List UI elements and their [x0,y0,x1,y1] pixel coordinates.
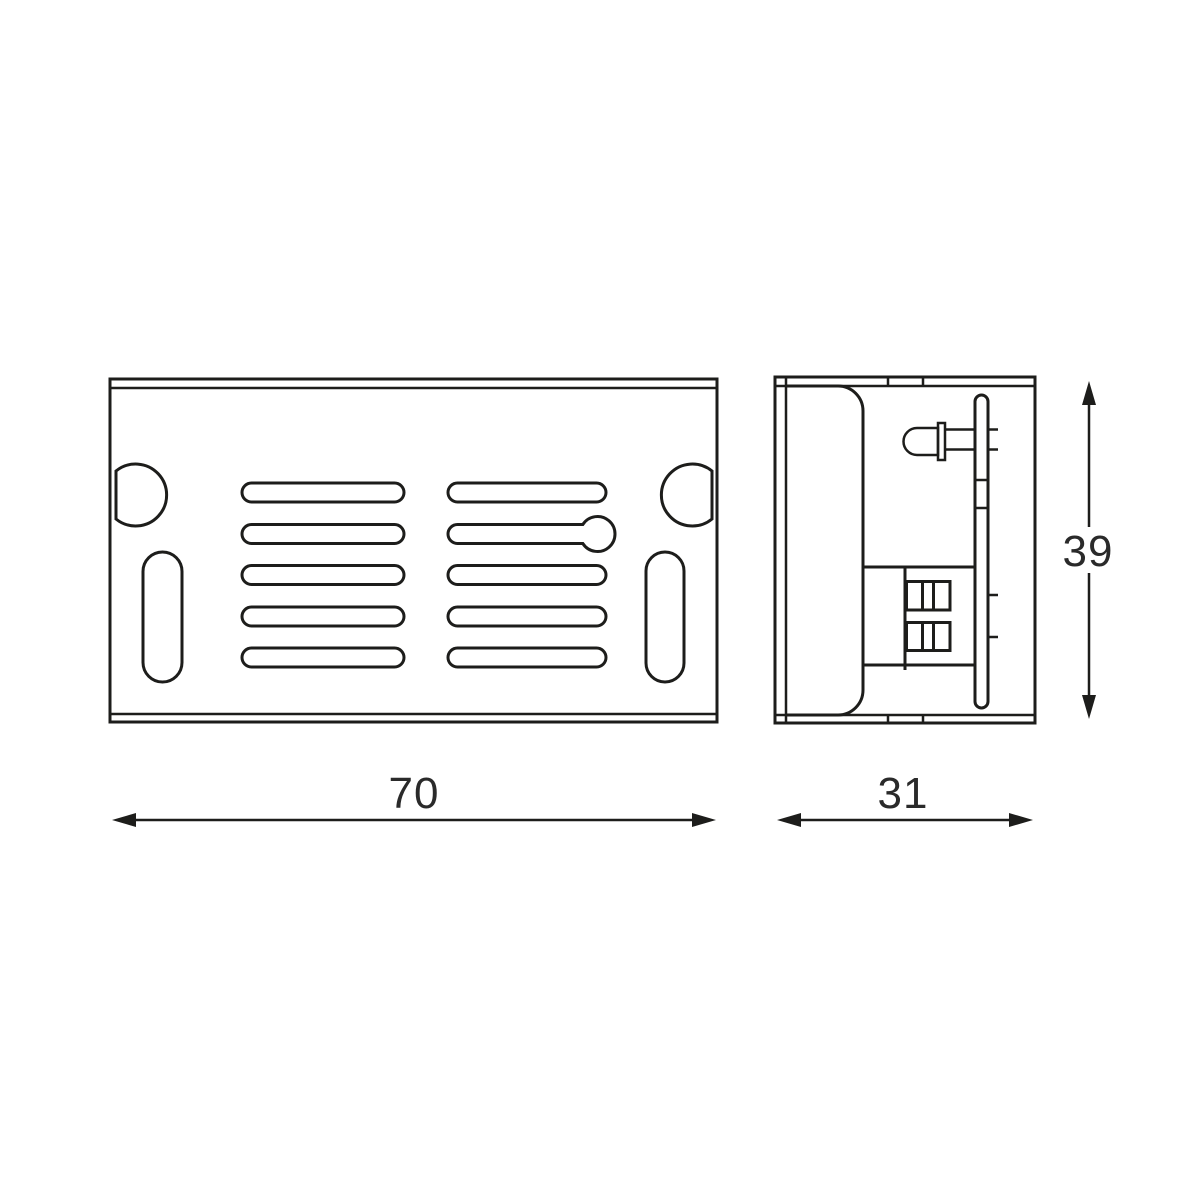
dimension-side-width: 31 [777,769,1033,827]
vent-slot [448,566,606,585]
arrowhead-up [1082,381,1096,405]
vent-slot [448,607,606,626]
dimension-drawing: 70 31 39 [0,0,1200,1200]
vent-slot [448,483,606,502]
front-width-label: 70 [389,769,440,818]
body-profile [786,386,863,715]
dimension-front-width: 70 [112,769,716,827]
pcb-board [975,395,988,708]
side-view [775,377,1035,723]
terminal-block [863,567,975,670]
vent-slot [448,648,606,667]
keyhole-slot [448,517,615,552]
led-dome [904,428,939,455]
vent-slot [242,483,404,502]
front-outer-body [110,379,717,722]
terminal-cell-upper [907,582,951,611]
front-view [110,379,717,722]
arrowhead-left [777,813,801,827]
terminal-cell-lower [907,623,951,651]
side-width-label: 31 [878,769,929,818]
arrowhead-left [112,813,136,827]
led-indicator [904,423,976,460]
vent-slots-left [242,483,404,667]
arrowhead-down [1082,695,1096,719]
left-d-cutout [116,464,167,526]
vent-slot [242,607,404,626]
dimension-height: 39 [1063,381,1114,719]
vent-slot [242,525,404,544]
height-label: 39 [1063,527,1114,576]
vent-slot [242,648,404,667]
arrowhead-right [692,813,716,827]
left-mounting-slot [143,552,182,682]
vent-slots-right [448,483,615,667]
vent-slot [242,566,404,585]
led-flange [938,423,945,460]
right-d-cutout [661,464,712,526]
right-mounting-slot [646,552,684,682]
arrowhead-right [1009,813,1033,827]
drawing-canvas: 70 31 39 [0,0,1200,1200]
